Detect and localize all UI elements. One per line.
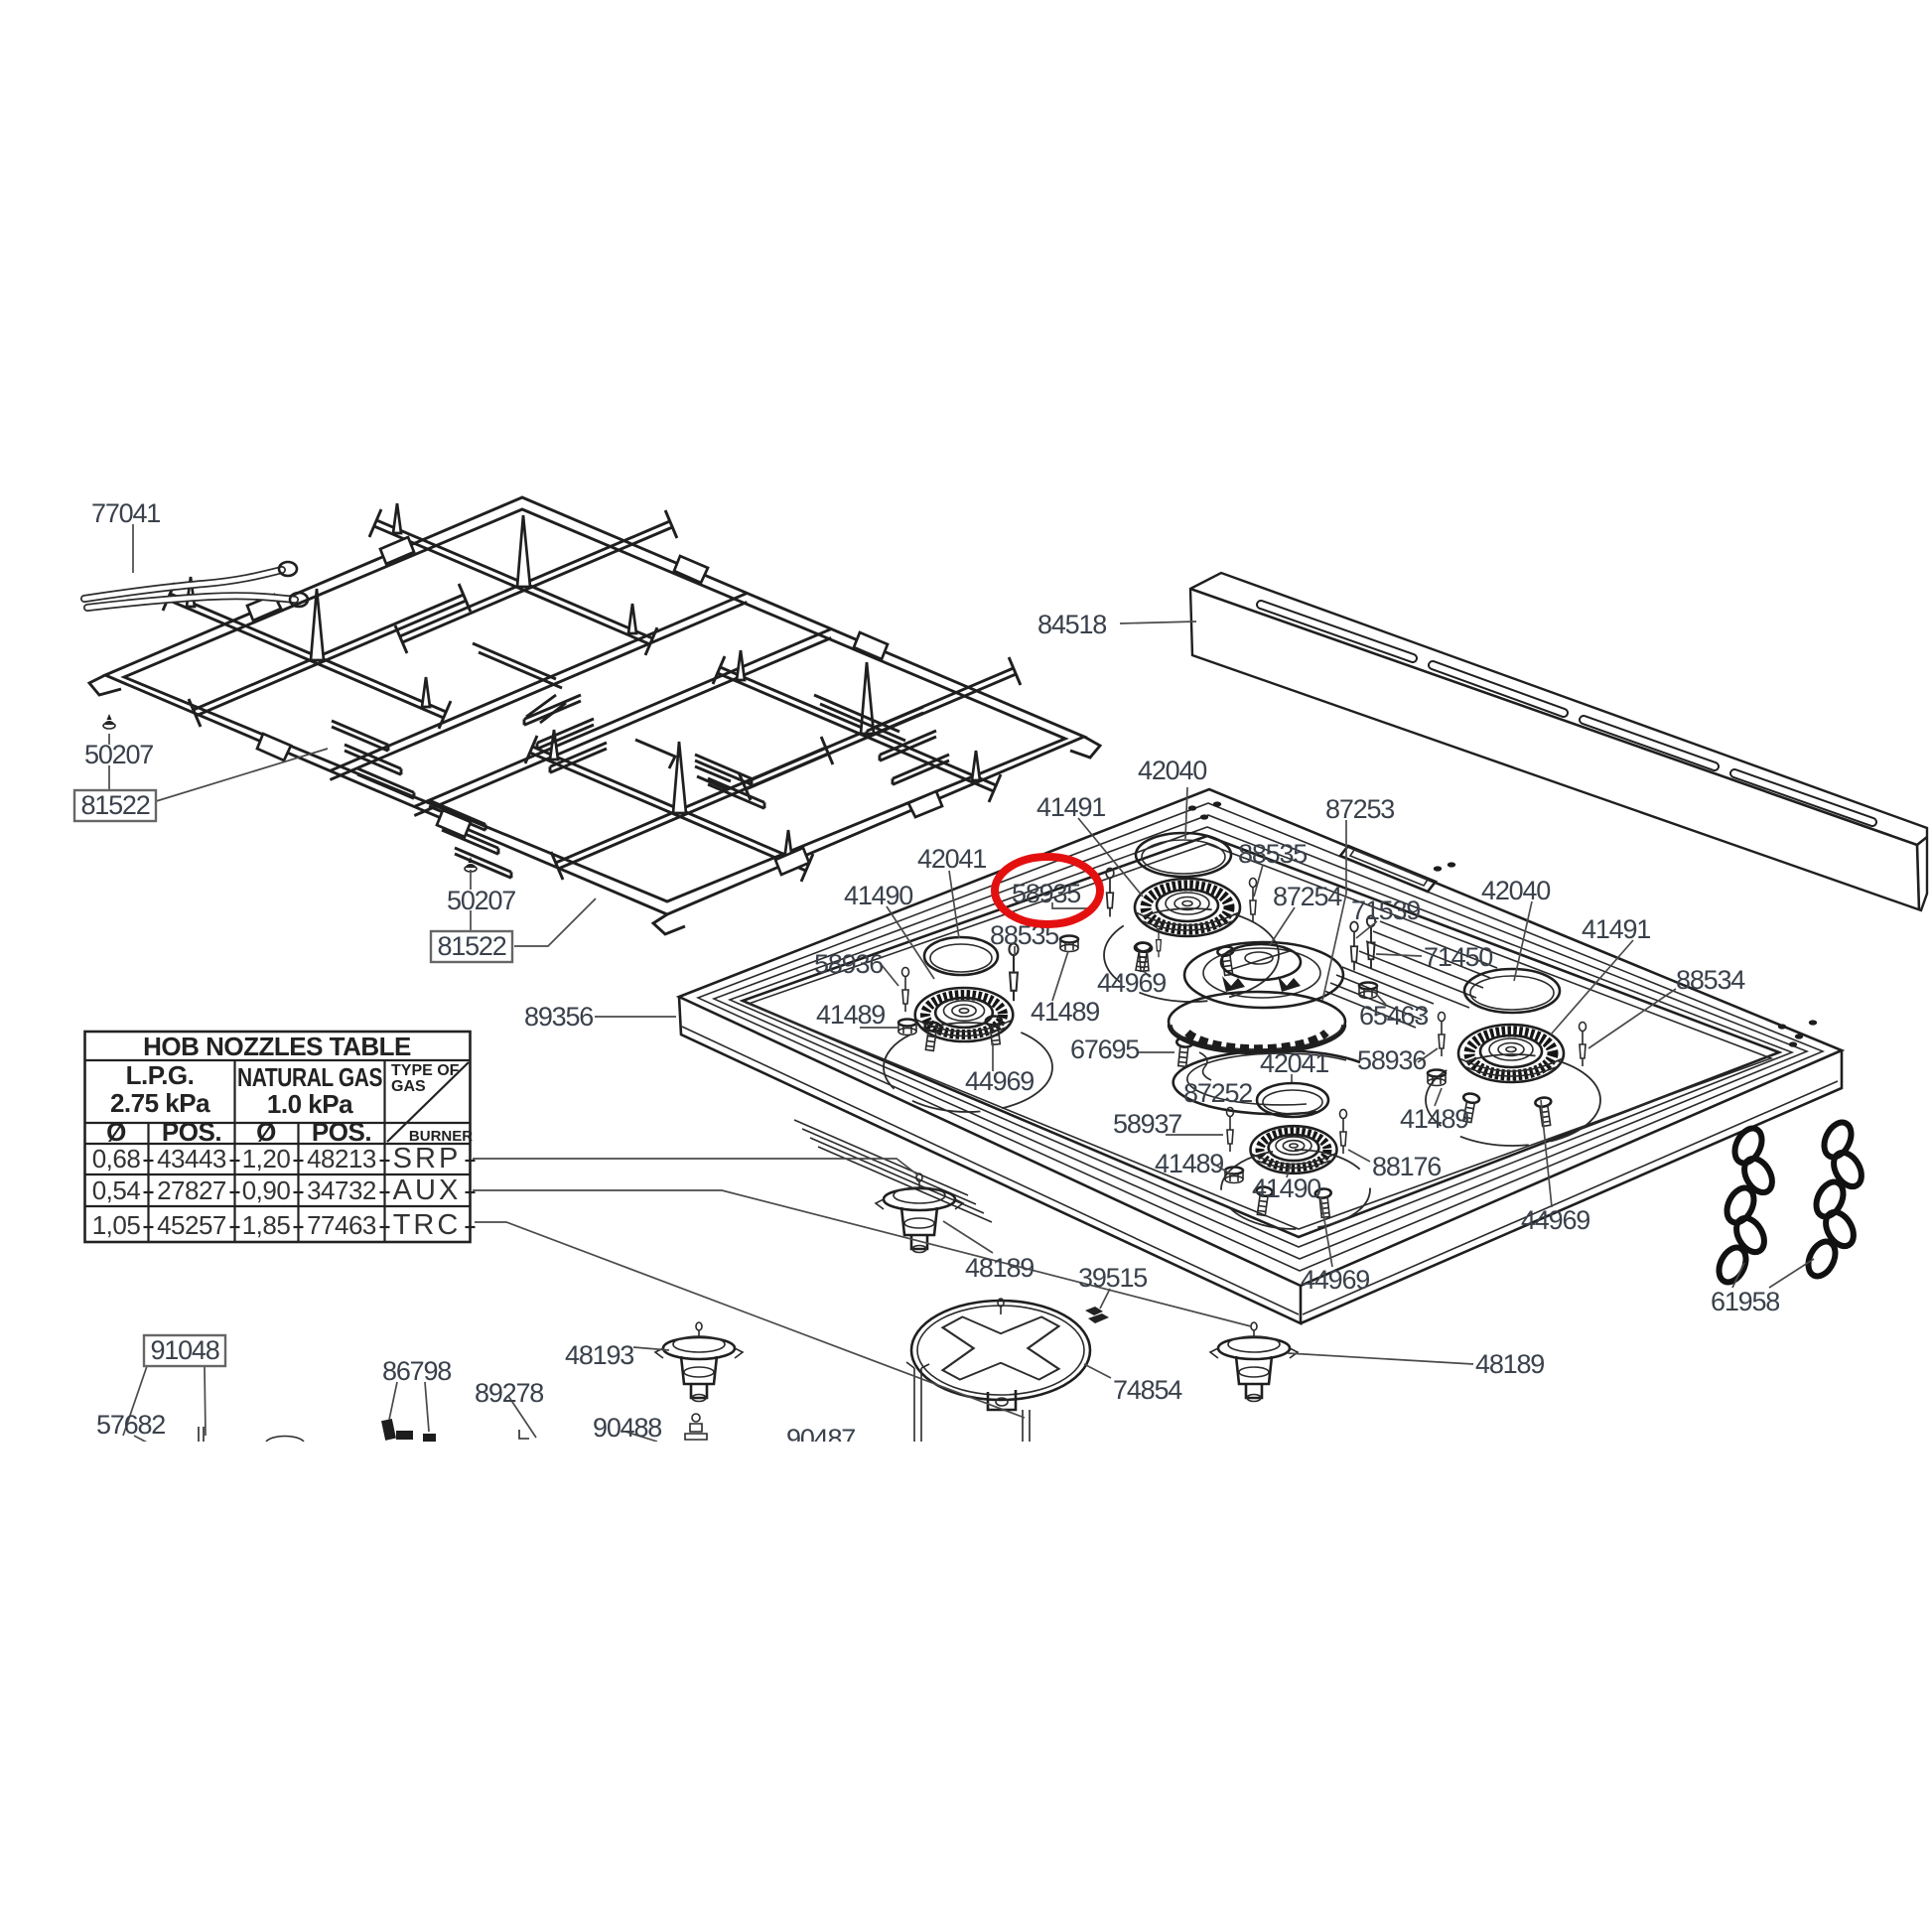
svg-text:81522: 81522 xyxy=(80,790,149,820)
svg-text:AUX: AUX xyxy=(393,1174,462,1206)
svg-text:50207: 50207 xyxy=(84,740,153,769)
svg-text:44969: 44969 xyxy=(1301,1265,1369,1295)
svg-text:48213: 48213 xyxy=(307,1144,376,1173)
svg-text:88534: 88534 xyxy=(1676,965,1745,995)
svg-text:58936: 58936 xyxy=(814,949,883,979)
svg-text:88176: 88176 xyxy=(1372,1152,1441,1181)
svg-text:48189: 48189 xyxy=(1475,1349,1544,1379)
svg-text:89356: 89356 xyxy=(524,1002,593,1032)
svg-text:71450: 71450 xyxy=(1424,942,1492,972)
svg-text:41491: 41491 xyxy=(1582,914,1650,944)
svg-text:L.P.G.: L.P.G. xyxy=(126,1060,195,1090)
svg-text:77463: 77463 xyxy=(307,1210,376,1240)
svg-text:0,90: 0,90 xyxy=(242,1175,291,1205)
svg-text:71539: 71539 xyxy=(1351,896,1420,925)
svg-text:87252: 87252 xyxy=(1183,1078,1252,1108)
svg-text:87253: 87253 xyxy=(1325,794,1394,824)
svg-text:TYPE OF: TYPE OF xyxy=(391,1062,460,1079)
svg-text:43443: 43443 xyxy=(157,1144,226,1173)
svg-text:44969: 44969 xyxy=(1097,968,1166,998)
svg-text:41490: 41490 xyxy=(1252,1173,1320,1203)
svg-text:27827: 27827 xyxy=(157,1175,226,1205)
svg-text:41489: 41489 xyxy=(1155,1149,1223,1178)
svg-text:81522: 81522 xyxy=(437,931,505,961)
svg-text:42040: 42040 xyxy=(1138,756,1206,785)
svg-text:1,05: 1,05 xyxy=(92,1210,141,1240)
svg-text:84518: 84518 xyxy=(1037,610,1106,639)
svg-text:48193: 48193 xyxy=(565,1340,633,1370)
svg-text:42040: 42040 xyxy=(1481,876,1550,905)
svg-text:42041: 42041 xyxy=(917,844,986,874)
svg-text:41490: 41490 xyxy=(844,881,912,910)
svg-text:34732: 34732 xyxy=(307,1175,376,1205)
svg-text:89278: 89278 xyxy=(475,1378,543,1408)
svg-text:Ø: Ø xyxy=(106,1117,126,1147)
svg-text:41491: 41491 xyxy=(1036,792,1105,822)
svg-text:61958: 61958 xyxy=(1711,1287,1779,1316)
svg-text:48189: 48189 xyxy=(965,1253,1034,1283)
svg-text:91048: 91048 xyxy=(150,1335,218,1365)
svg-text:58935: 58935 xyxy=(1012,879,1080,908)
svg-text:41489: 41489 xyxy=(816,1000,885,1030)
svg-text:65463: 65463 xyxy=(1359,1001,1428,1031)
svg-text:1,85: 1,85 xyxy=(242,1210,291,1240)
svg-text:58937: 58937 xyxy=(1113,1109,1181,1139)
svg-text:44969: 44969 xyxy=(1521,1205,1589,1235)
svg-text:45257: 45257 xyxy=(157,1210,226,1240)
svg-text:58936: 58936 xyxy=(1357,1045,1426,1075)
svg-text:1,20: 1,20 xyxy=(242,1144,291,1173)
svg-text:0,54: 0,54 xyxy=(92,1175,141,1205)
svg-text:1.0 kPa: 1.0 kPa xyxy=(267,1089,353,1119)
svg-text:87254: 87254 xyxy=(1273,882,1342,911)
svg-text:TRC: TRC xyxy=(393,1209,462,1241)
svg-text:44969: 44969 xyxy=(965,1066,1034,1096)
svg-text:POS.: POS. xyxy=(162,1117,221,1147)
svg-text:57682: 57682 xyxy=(96,1410,165,1440)
svg-text:88535: 88535 xyxy=(1238,839,1307,869)
svg-text:2.75 kPa: 2.75 kPa xyxy=(110,1088,210,1118)
svg-text:POS.: POS. xyxy=(312,1117,371,1147)
svg-text:Ø: Ø xyxy=(256,1117,276,1147)
svg-text:77041: 77041 xyxy=(91,498,160,528)
svg-text:0,68: 0,68 xyxy=(92,1144,141,1173)
svg-text:90488: 90488 xyxy=(593,1413,661,1443)
svg-text:50207: 50207 xyxy=(447,886,515,915)
svg-text:NATURAL GAS: NATURAL GAS xyxy=(237,1062,382,1092)
svg-text:42041: 42041 xyxy=(1260,1048,1328,1078)
svg-text:39515: 39515 xyxy=(1078,1263,1147,1293)
svg-text:41489: 41489 xyxy=(1400,1104,1468,1134)
svg-text:67695: 67695 xyxy=(1070,1035,1139,1064)
svg-text:HOB NOZZLES TABLE: HOB NOZZLES TABLE xyxy=(143,1032,411,1061)
svg-text:86798: 86798 xyxy=(382,1356,451,1386)
svg-text:SRP: SRP xyxy=(393,1143,462,1174)
svg-text:GAS: GAS xyxy=(391,1078,426,1095)
svg-text:41489: 41489 xyxy=(1031,997,1099,1027)
svg-text:74854: 74854 xyxy=(1113,1375,1182,1405)
